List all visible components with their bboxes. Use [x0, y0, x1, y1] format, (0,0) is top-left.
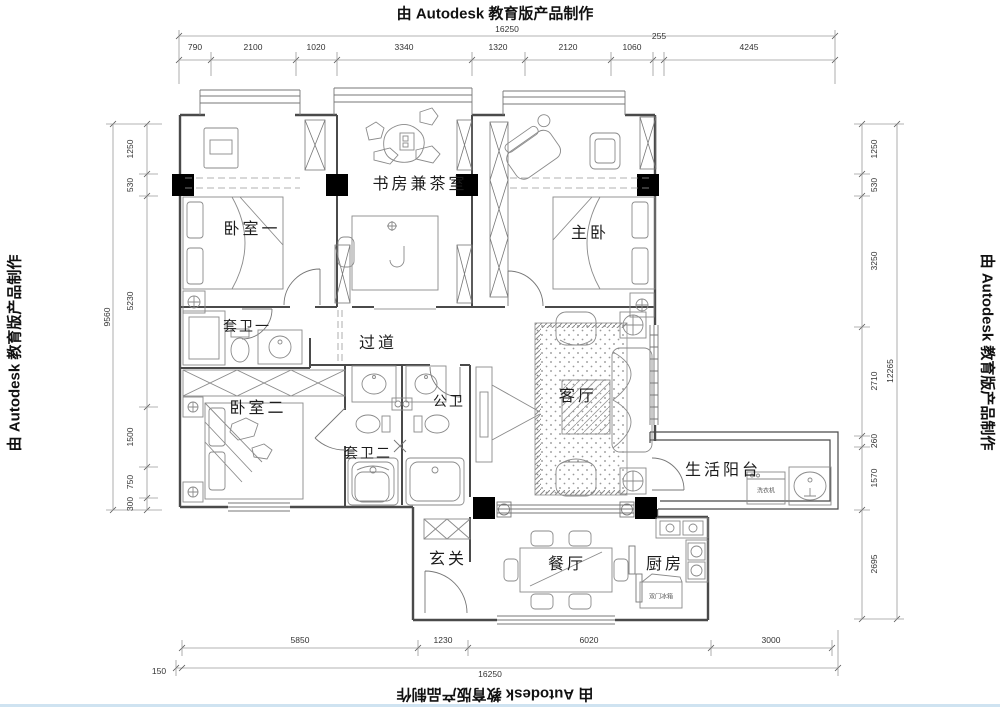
wall-shafts — [305, 117, 656, 303]
bathtub-ensuite2 — [348, 458, 398, 505]
vanity-ensuite2 — [352, 366, 396, 402]
dim-right-0: 1250 — [869, 140, 879, 159]
dim-bottom-1: 1230 — [434, 635, 453, 645]
dim-right-1: 530 — [869, 178, 879, 192]
toilet-public-bath — [414, 415, 449, 433]
nightstand-bedroom2-b — [183, 482, 203, 502]
nightstand-bedroom1 — [183, 291, 205, 313]
dim-top-total: 16250 — [495, 24, 519, 34]
shoe-cabinet-entry — [424, 519, 470, 539]
laundry-sink-balcony — [789, 467, 831, 505]
room-label-dining: 餐厅 — [548, 550, 586, 574]
bathtub-public-bath — [406, 458, 464, 505]
room-label-bedroom2: 卧室二 — [229, 394, 286, 418]
dim-left-2: 5230 — [125, 292, 135, 311]
toilet-ensuite2 — [356, 415, 390, 433]
dim-bottom-total: 16250 — [478, 669, 502, 679]
nightstand-master — [630, 293, 654, 317]
floor-plan-linework — [0, 0, 1000, 707]
room-label-balcony: 生活阳台 — [685, 456, 761, 480]
dim-left-1: 530 — [125, 178, 135, 192]
dim-right-6: 2695 — [869, 555, 879, 574]
bed-master — [553, 197, 655, 289]
dim-top-5: 2120 — [559, 42, 578, 52]
tv-cabinet-living — [476, 367, 540, 462]
room-label-entry: 玄关 — [429, 545, 467, 569]
dim-top-8: 4245 — [740, 42, 759, 52]
room-label-public-bath: 公卫 — [433, 391, 465, 411]
side-table-master — [590, 133, 620, 169]
floor-plan-page: 由 Autodesk 教育版产品制作 由 Autodesk 教育版产品制作 由 … — [0, 0, 1000, 707]
room-label-ensuite2: 套卫二 — [344, 443, 392, 463]
dim-left-total: 9560 — [102, 308, 112, 327]
dim-left-0: 1250 — [125, 140, 135, 159]
dim-bottom-3: 3000 — [762, 635, 781, 645]
dim-bottom-0: 5850 — [291, 635, 310, 645]
nightstand-bedroom2-a — [183, 397, 203, 417]
room-label-kitchen: 厨房 — [646, 550, 684, 574]
room-label-corridor: 过道 — [359, 329, 397, 353]
dim-top-0: 790 — [188, 42, 202, 52]
dim-top-7: 255 — [652, 31, 666, 41]
dim-top-6: 1060 — [623, 42, 642, 52]
room-label-study: 书房兼茶室 — [372, 170, 467, 194]
wardrobe-bedroom2 — [183, 370, 345, 396]
room-label-ensuite1: 套卫一 — [223, 316, 271, 336]
dim-bottom-2: 6020 — [580, 635, 599, 645]
dim-right-total: 12265 — [885, 359, 895, 383]
dim-top-1: 2100 — [244, 42, 263, 52]
dim-left-3: 1500 — [125, 428, 135, 447]
cabinet-ensuite1 — [183, 311, 225, 365]
desk-bedroom1 — [204, 128, 238, 168]
dim-left-4: 750 — [125, 475, 135, 489]
dim-right-4: 260 — [869, 434, 879, 448]
tea-table-study — [366, 108, 440, 164]
dim-right-5: 1570 — [869, 469, 879, 488]
desk-study — [338, 216, 438, 290]
dim-top-3: 3340 — [395, 42, 414, 52]
dim-top-2: 1020 — [307, 42, 326, 52]
dim-right-2: 3250 — [869, 252, 879, 271]
dim-right-3: 2710 — [869, 372, 879, 391]
fridge-label: 双门冰箱 — [649, 592, 673, 601]
chair-bedroom2 — [355, 466, 389, 502]
dim-left-5: 300 — [125, 497, 135, 511]
bed-bedroom1 — [183, 197, 283, 289]
dim-bottom-offset: 150 — [152, 666, 166, 676]
room-label-living: 客厅 — [559, 382, 597, 406]
washer-label: 洗衣机 — [757, 486, 775, 495]
dim-top-4: 1320 — [489, 42, 508, 52]
dimension-lines — [106, 30, 904, 676]
room-label-master: 主卧 — [571, 219, 609, 243]
room-label-bedroom1: 卧室一 — [223, 215, 280, 239]
